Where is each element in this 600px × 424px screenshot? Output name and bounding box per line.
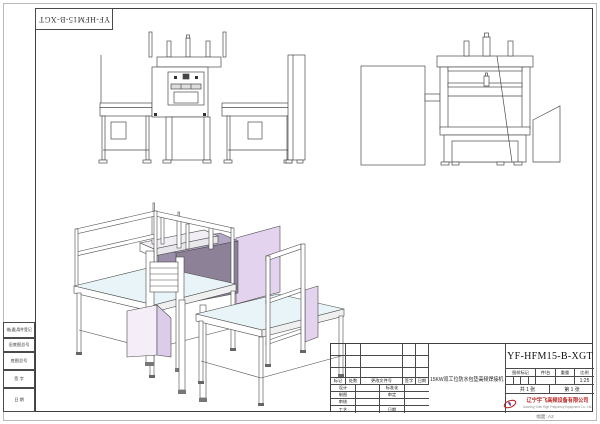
spec-mark-sub-cell xyxy=(529,377,537,385)
role-standardization: 标准化 xyxy=(380,385,405,392)
spec-header-weight: 重量 xyxy=(556,369,575,377)
role-draft-sign xyxy=(356,392,380,399)
drawing-sheet: YF-HFM15-B-XGT 借(通)用件登记 旧底图总号 底图总号 签 字 日… xyxy=(0,0,600,424)
role-process-sign xyxy=(356,406,380,413)
role-approve-sign xyxy=(405,392,429,399)
paper-size-note: 幅面: A2 xyxy=(500,414,590,420)
revision-empty-cell xyxy=(346,344,361,378)
revision-header-count: 处数 xyxy=(346,378,361,385)
sheet-number: 第 1 张 xyxy=(550,385,594,394)
role-blank-sign xyxy=(405,399,429,406)
isometric-view xyxy=(74,203,344,406)
product-name: 15KW双工位防水包垫高频焊接机 xyxy=(430,374,503,383)
role-process: 工艺 xyxy=(331,406,356,413)
role-draft: 制图 xyxy=(331,392,356,399)
company-logo xyxy=(503,398,517,410)
revision-header-sign: 签字 xyxy=(403,378,416,385)
revision-row-line xyxy=(331,355,429,356)
spec-header-scale: 比例 xyxy=(575,369,594,377)
spec-header-per-unit: 件/台 xyxy=(536,369,556,377)
revision-empty-cell xyxy=(403,344,416,378)
spec-mark-sub-cell xyxy=(521,377,529,385)
front-view xyxy=(99,32,305,163)
drawing-number-cell: YF-HFM15-B-XGT xyxy=(506,344,594,369)
role-standardization-sign xyxy=(405,385,429,392)
spec-mark-sub-cell xyxy=(514,377,522,385)
sheet-total: 共 1 张 xyxy=(506,385,550,394)
role-check-sign xyxy=(356,399,380,406)
title-block: 标记 处数 更改文件号 签字 日期 设计 标准化 制图 审定 审核 工艺 日期 … xyxy=(330,343,593,412)
revision-header-mark: 标记 xyxy=(331,378,346,385)
side-view xyxy=(361,33,560,165)
revision-row-line xyxy=(331,367,429,368)
revision-header-date: 日期 xyxy=(416,378,429,385)
spec-mark-sub-cell xyxy=(506,377,514,385)
company-cell: 辽宁宇飞高频设备有限公司 Liaoning Yufei High Frequen… xyxy=(506,394,594,413)
spec-per-unit-value xyxy=(536,377,556,385)
role-approve: 审定 xyxy=(380,392,405,399)
role-date: 日期 xyxy=(380,406,405,413)
spec-header-mark: 图样标记 xyxy=(506,369,536,377)
revision-header-doc-no: 更改文件号 xyxy=(361,378,403,385)
revision-empty-cell xyxy=(361,344,403,378)
revision-empty-cell xyxy=(331,344,346,378)
role-date-sign xyxy=(405,406,429,413)
role-design-sign xyxy=(356,385,380,392)
role-blank xyxy=(380,399,405,406)
company-name-zh: 辽宁宇飞高频设备有限公司 xyxy=(523,398,594,405)
spec-weight-value xyxy=(556,377,575,385)
role-design: 设计 xyxy=(331,385,356,392)
product-name-cell: 15KW双工位防水包垫高频焊接机 xyxy=(429,344,506,413)
role-check: 审核 xyxy=(331,399,356,406)
spec-scale-value: 1:25 xyxy=(575,377,594,385)
revision-empty-cell xyxy=(416,344,429,378)
company-name-en: Liaoning Yufei High Frequency Equipment … xyxy=(523,405,592,409)
